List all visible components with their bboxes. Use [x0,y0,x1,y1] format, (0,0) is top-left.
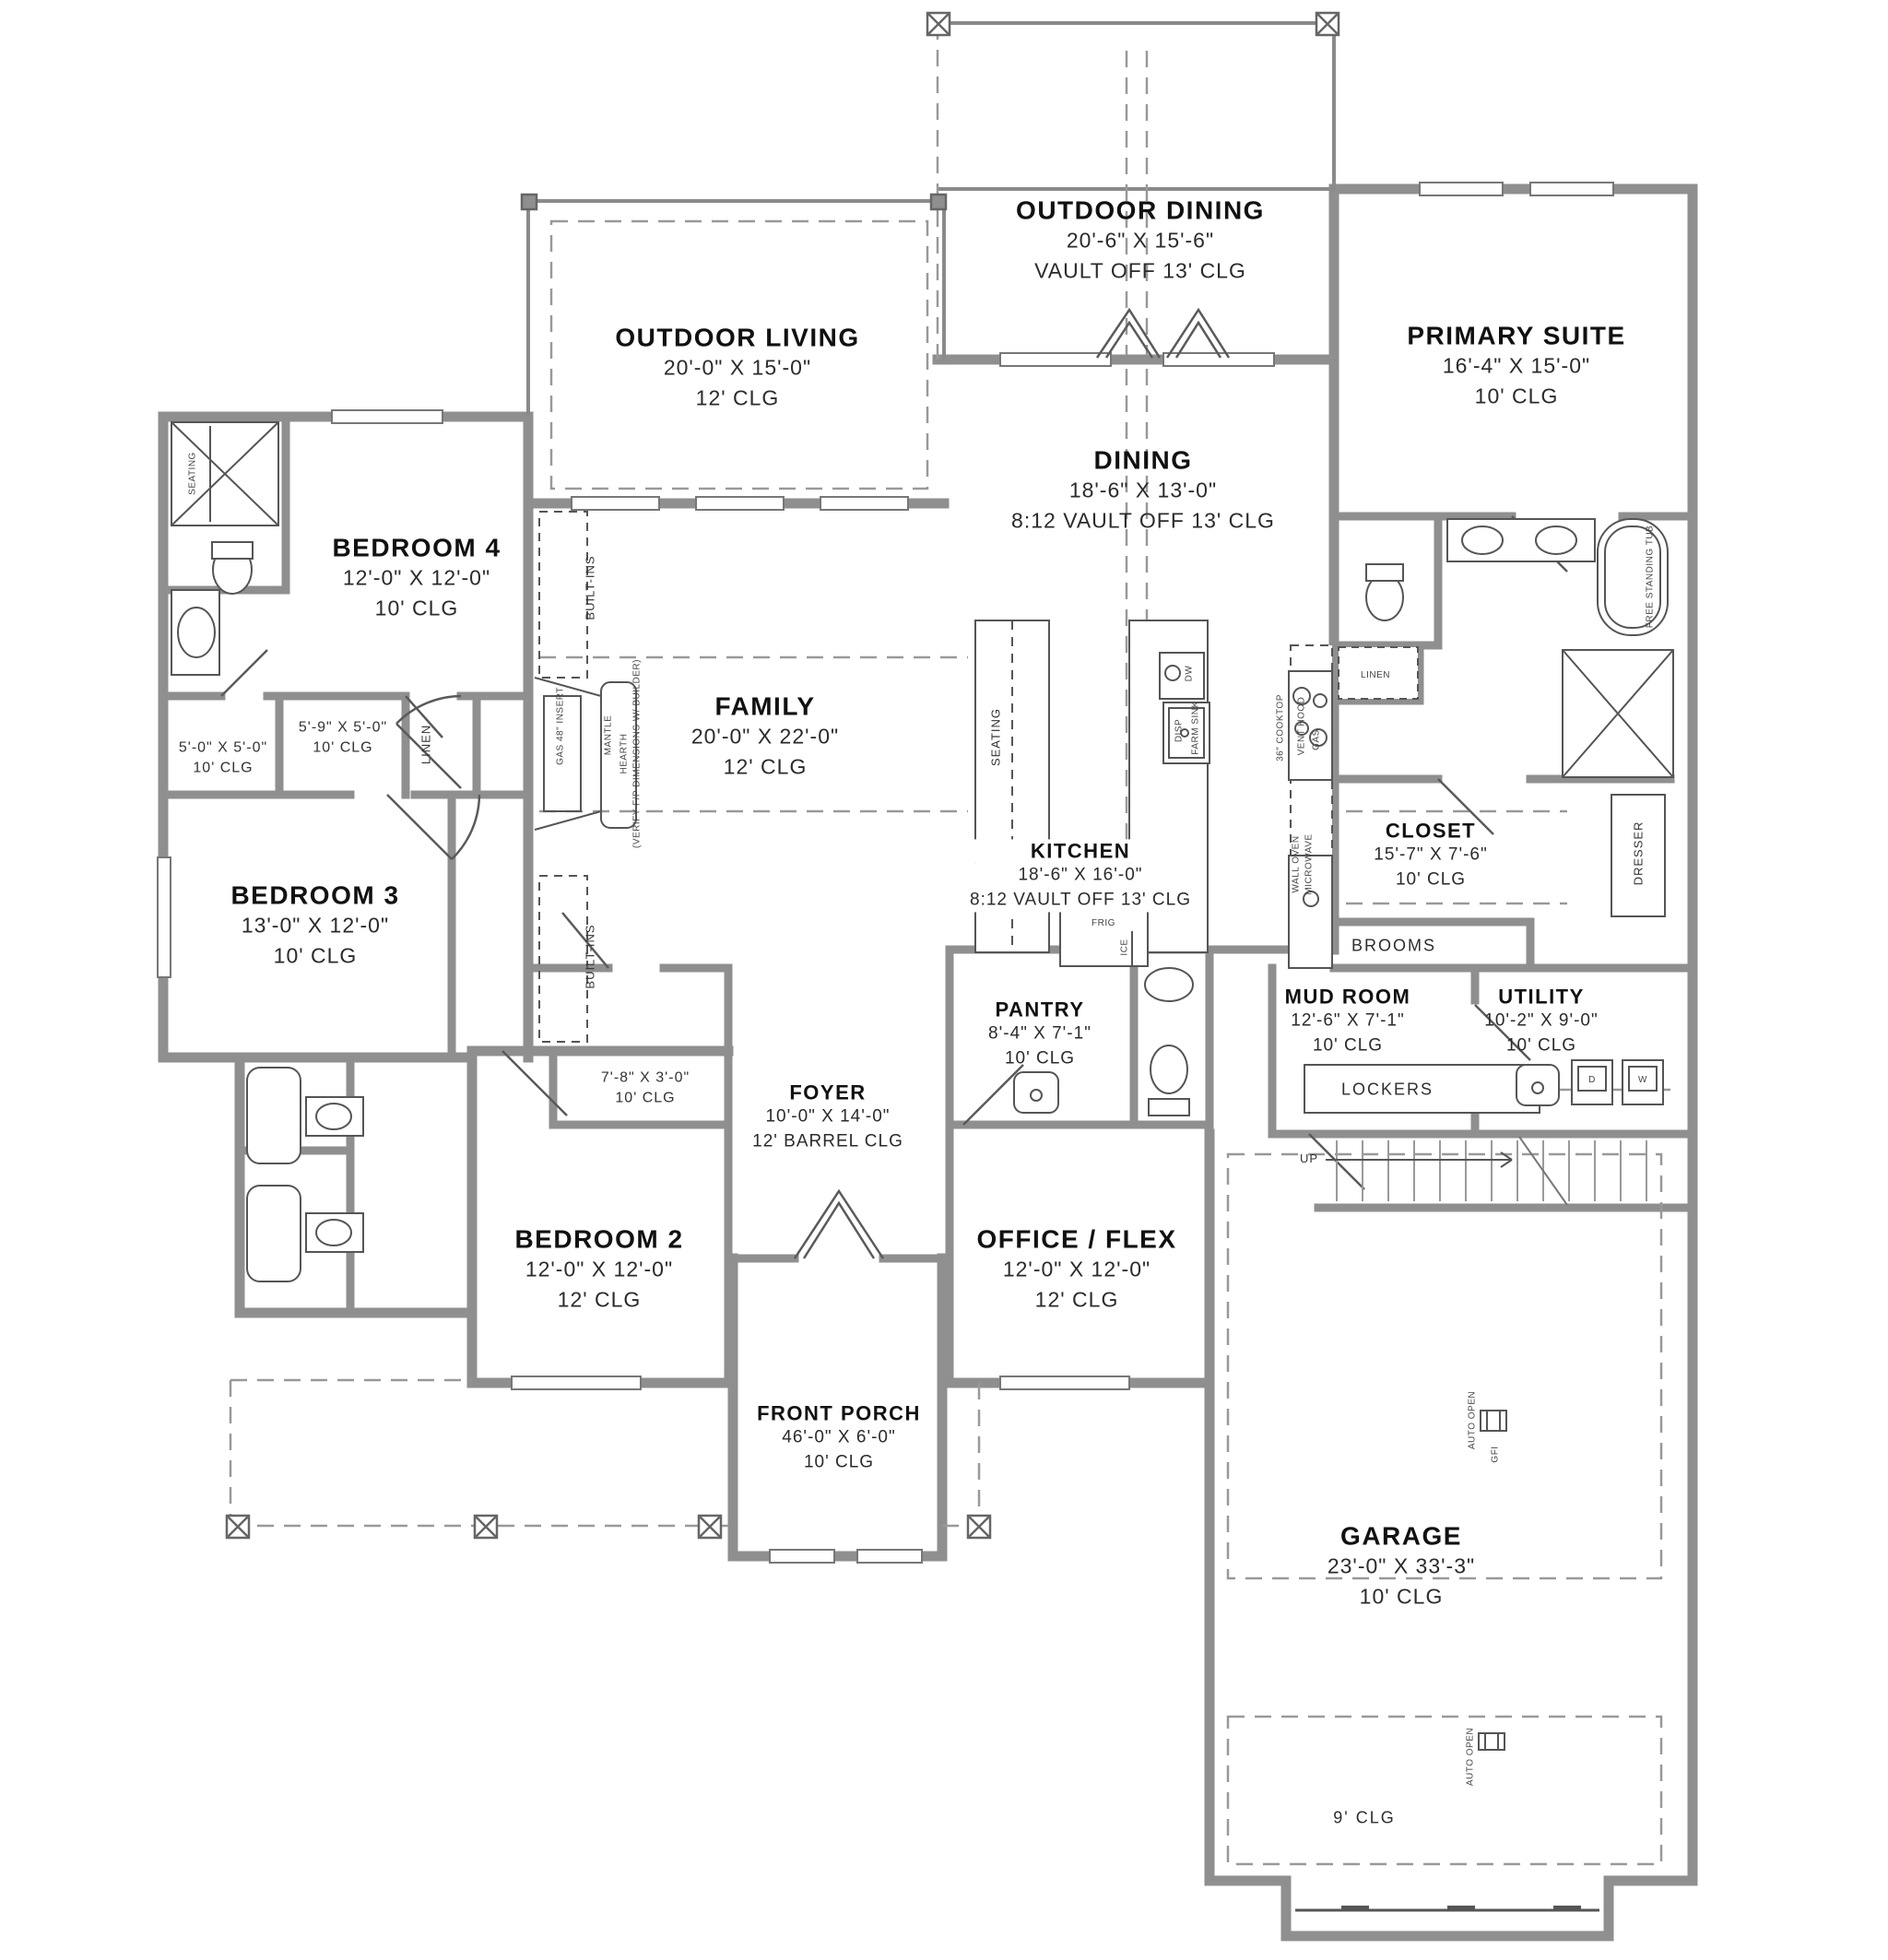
gas-label: GAS [1312,729,1322,755]
seating-label-shower: SEATING [188,452,198,500]
room-label-outdoor-living: OUTDOOR LIVING 20'-0" X 15'-0" 12' CLG [615,324,859,415]
auto-open-label-1: AUTO OPEN [1468,1391,1478,1454]
dresser-label: DRESSER [1632,821,1646,891]
room-label-office-flex: OFFICE / FLEX 12'-0" X 12'-0" 12' CLG [976,1225,1176,1317]
room-label-bath-closet: 5'-0" X 5'-0" 10' CLG [179,738,267,777]
disp-label: DISP [1174,719,1185,747]
exterior-walls [163,189,1693,1936]
up-label: UP [1300,1151,1318,1167]
stairs [1326,1137,1646,1205]
room-label-coat-closet: 7'-8" X 3'-0" 10' CLG [601,1068,690,1107]
seating-label-island: SEATING [989,708,1003,771]
microwave-label: MICROWAVE [1304,833,1315,899]
room-label-garage: GARAGE 23'-0" X 33'-3" 10' CLG [1327,1522,1475,1613]
room-label-utility: UTILITY 10'-2" X 9'-0" 10' CLG [1484,985,1598,1057]
hearth-label: HEARTH [619,734,630,779]
linen-label-hall: LINEN [419,725,433,769]
ice-label: ICE [1120,939,1130,960]
room-label-front-porch: FRONT PORCH 46'-0" X 6'-0" 10' CLG [757,1401,921,1474]
frig-label: FRIG [1091,914,1115,930]
dw-label: DW [1185,666,1195,687]
garage-details [1295,1411,1599,1910]
room-label-pantry: PANTRY 8'-4" X 7'-1" 10' CLG [988,998,1091,1070]
free-standing-tub-label: FREE STANDING TUB [1646,525,1656,632]
hearth-note-label: (VERIFY F/P DIMENSIONS W/ BUILDER) [632,659,643,853]
dryer-label: D [1588,1070,1596,1087]
kitchen-fixtures [975,620,1332,968]
room-label-closet: CLOSET 15'-7" X 7'-6" 10' CLG [1374,819,1487,891]
room-label-bedroom4: BEDROOM 4 12'-0" X 12'-0" 10' CLG [332,534,501,625]
auto-open-label-2: AUTO OPEN [1466,1728,1476,1790]
room-label-foyer: FOYER 10'-0" X 14'-0" 12' BARREL CLG [752,1080,903,1153]
mantle-label: MANTLE [604,715,614,761]
garage-rear-ceiling-label: 9' CLG [1333,1809,1395,1828]
lockers-label: LOCKERS [1341,1080,1434,1100]
room-label-kitchen: KITCHEN 18'-6" X 16'-0" 8:12 VAULT OFF 1… [966,839,1195,912]
brooms-label: BROOMS [1351,937,1436,956]
room-label-water-closet: 5'-9" X 5'-0" 10' CLG [299,717,387,757]
room-label-dining: DINING 18'-6" X 13'-0" 8:12 VAULT OFF 13… [1011,446,1275,537]
room-label-bedroom2: BEDROOM 2 12'-0" X 12'-0" 12' CLG [514,1225,683,1317]
gas-insert-label: GAS 48" INSERT [556,687,566,770]
room-label-family: FAMILY 20'-0" X 22'-0" 12' CLG [688,692,843,784]
room-label-primary-suite: PRIMARY SUITE 16'-4" X 15'-0" 10' CLG [1407,322,1625,413]
linen-label-primary: LINEN [1361,666,1390,682]
room-label-bedroom3: BEDROOM 3 13'-0" X 12'-0" 10' CLG [230,881,399,973]
gfi-label: GFI [1491,1446,1501,1467]
floor-plan: OUTDOOR DINING 20'-6" X 15'-6" VAULT OFF… [0,0,1888,1960]
room-label-mud-room: MUD ROOM 12'-6" X 7'-1" 10' CLG [1285,985,1411,1057]
floor-plan-drawing [0,0,1888,1960]
cooktop-label: 36" COOKTOP [1276,694,1286,766]
built-ins-label-top: BUILT-INS [584,555,597,624]
wall-oven-label: WALL OVEN [1292,835,1302,897]
farm-sink-label: FARM SINK [1191,701,1201,759]
vent-hood-label: VENT HOOD [1297,697,1307,761]
built-ins-label-bottom: BUILT-INS [584,924,597,993]
washer-label: W [1638,1070,1647,1087]
room-label-outdoor-dining: OUTDOOR DINING 20'-6" X 15'-6" VAULT OFF… [1016,196,1265,288]
